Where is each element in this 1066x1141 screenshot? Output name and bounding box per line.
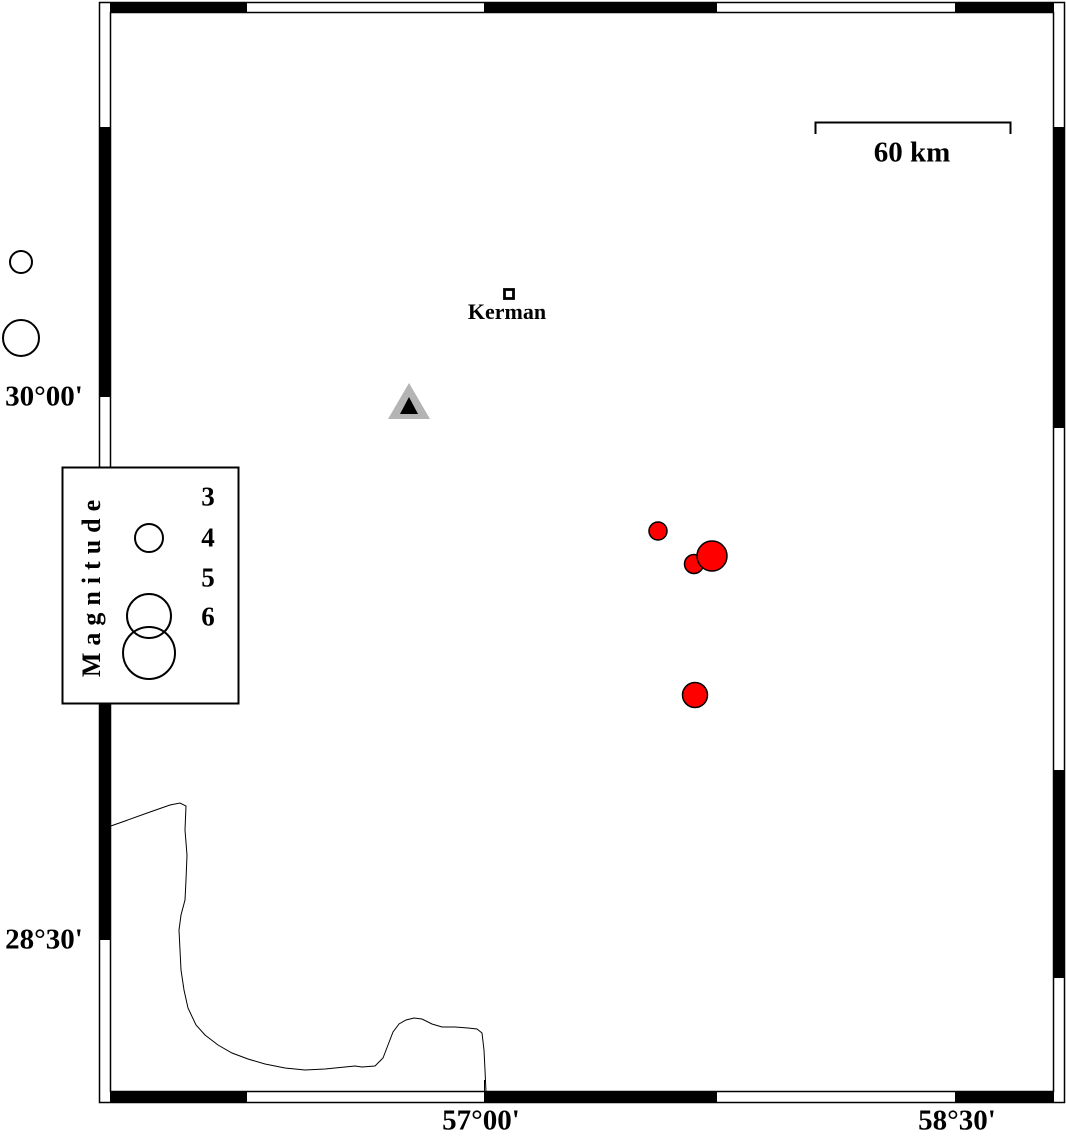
magnitude-scale-circle [3, 320, 39, 356]
magnitude-scale-circle [10, 251, 32, 273]
scale-bar-label: 60 km [874, 139, 951, 168]
legend-entry-3: 3 [201, 484, 215, 511]
border-segment-left [99, 127, 110, 397]
lon-label-57-00: 57°00' [442, 1107, 520, 1136]
border-segment-left [99, 681, 110, 940]
border-segment-top [484, 2, 717, 12]
earthquake-marker [697, 541, 727, 571]
border-segment-top [110, 2, 247, 12]
city-marker-square [505, 290, 514, 299]
legend-entry-6: 6 [201, 604, 215, 631]
earthquake-marker [649, 522, 667, 540]
lon-label-58-30: 58°30' [918, 1107, 996, 1136]
lat-label-28-30: 28°30' [5, 926, 83, 955]
border-segment-right [1054, 770, 1065, 978]
legend-title: Magnitude [79, 493, 105, 677]
border-segment-right [1054, 127, 1065, 428]
border-segment-bottom [484, 1092, 717, 1103]
border-segment-bottom [110, 1092, 247, 1103]
border-segment-top [955, 2, 1054, 12]
map-canvas [0, 0, 1066, 1141]
earthquake-marker [683, 683, 708, 708]
map-frame-inner [111, 13, 1054, 1092]
coastline [108, 803, 486, 1092]
border-segment-bottom [955, 1092, 1054, 1103]
lat-label-30-00: 30°00' [5, 383, 83, 412]
city-label-kerman: Kerman [468, 301, 546, 323]
legend-entry-4: 4 [201, 525, 215, 552]
seismicity-map-page: { "map": { "region_note": "seismicity ma… [0, 0, 1066, 1141]
legend-entry-5: 5 [201, 565, 215, 592]
scale-bar [816, 123, 1011, 135]
